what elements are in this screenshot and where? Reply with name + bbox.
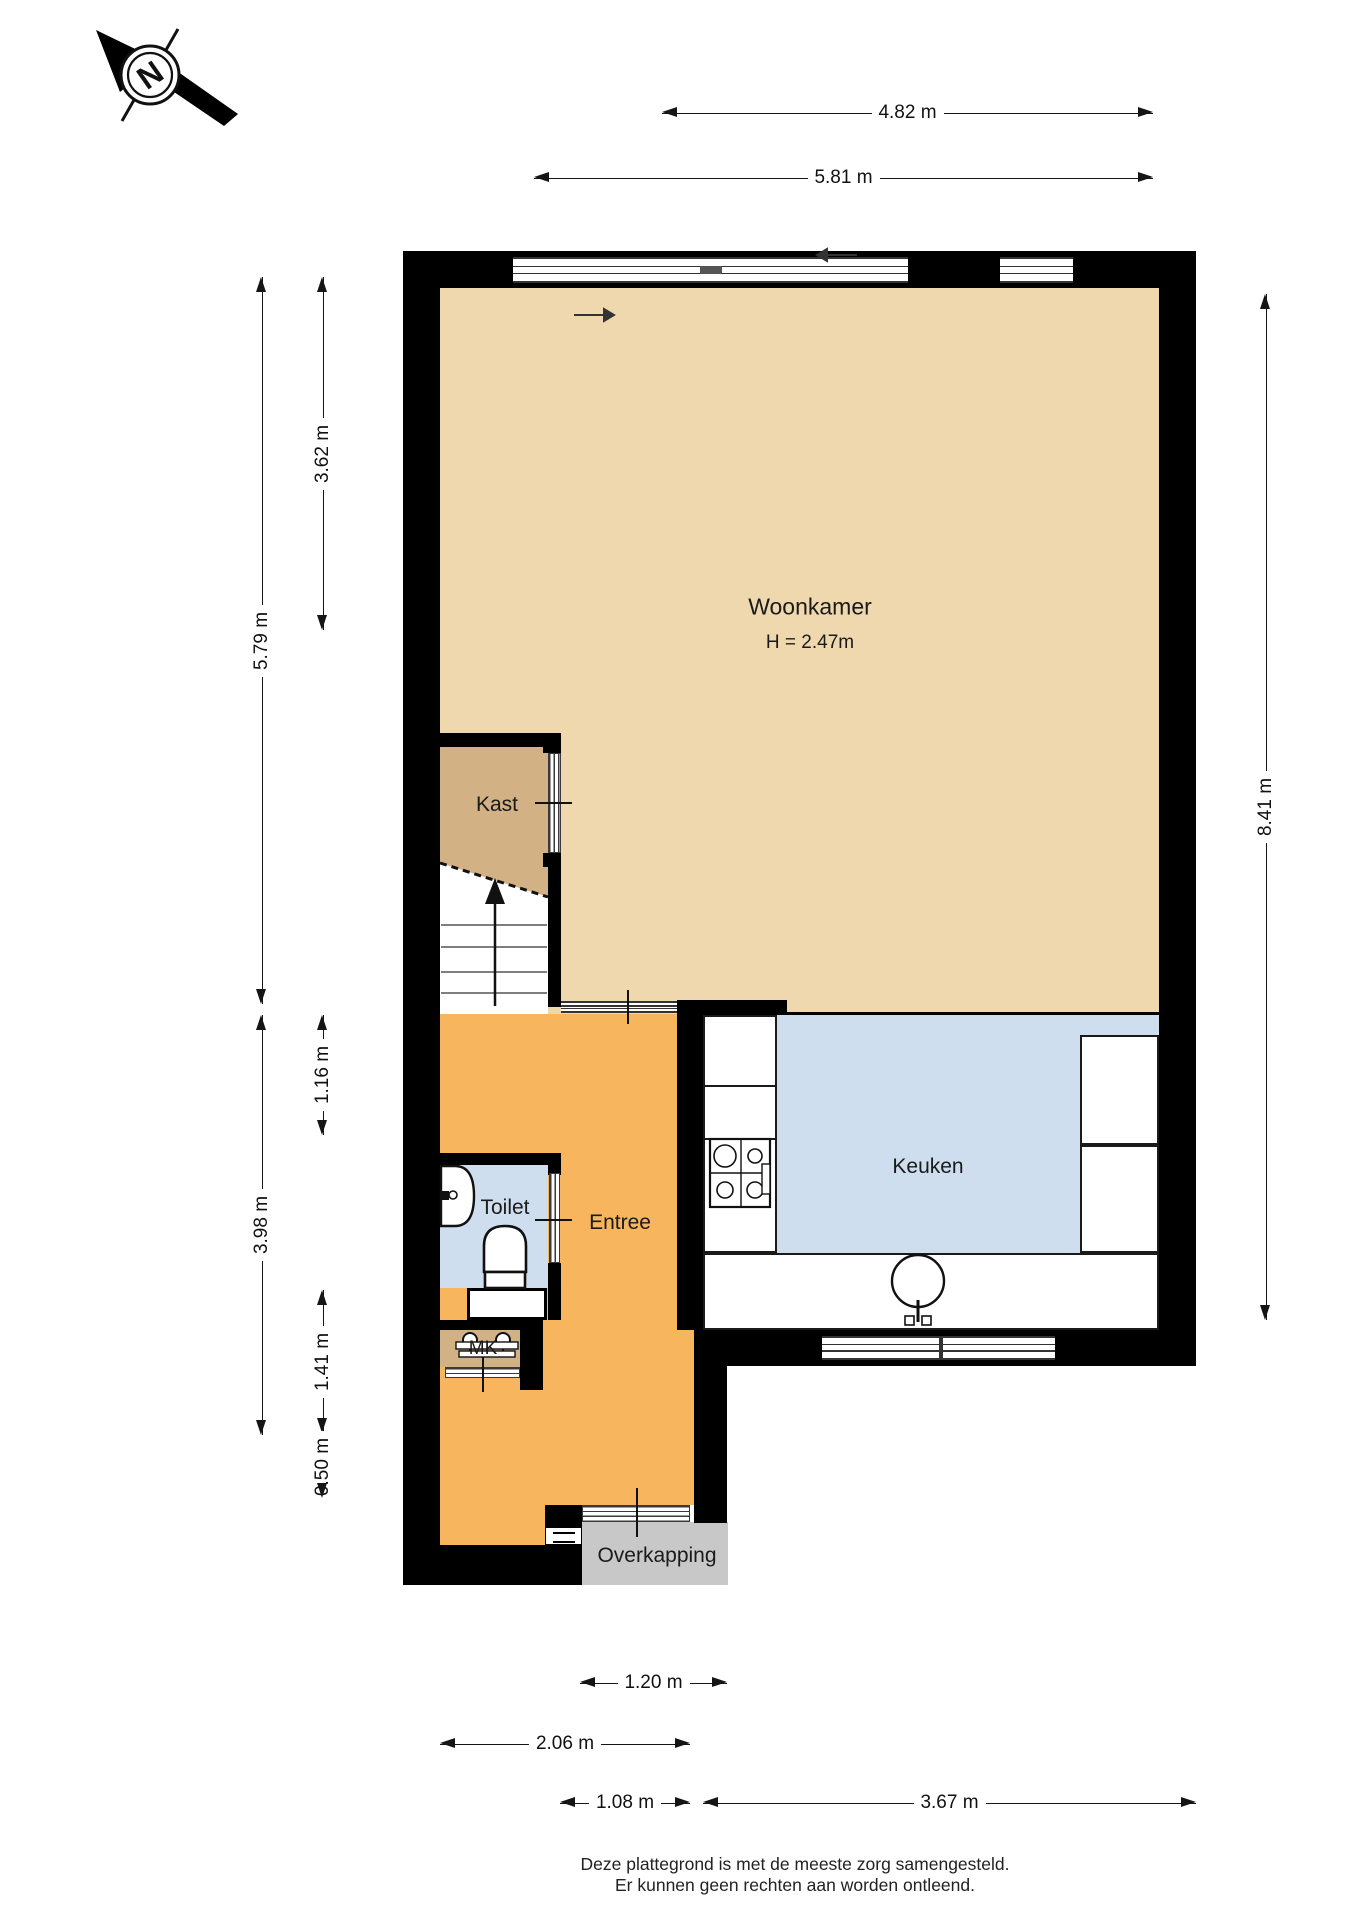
counter-division: [705, 1138, 775, 1140]
counter-division: [705, 1085, 775, 1087]
window-keuken: [822, 1336, 1055, 1360]
dimension-top-4-82: 4.82 m: [662, 113, 1153, 114]
cabinet-keuken-right-lower: [1080, 1145, 1159, 1253]
wall-stairs-side: [548, 867, 561, 1007]
dimension-label: 3.67 m: [913, 1792, 985, 1814]
dimension-left-1-41: 1.41 m: [323, 1290, 324, 1433]
wall-right: [1159, 251, 1196, 1366]
window-front-side: [545, 1527, 582, 1545]
disclaimer-line-2: Er kunnen geen rechten aan worden ontlee…: [345, 1875, 1245, 1896]
dimension-label: 1.20 m: [617, 1672, 689, 1694]
dimension-label: 1.16 m: [312, 1039, 334, 1111]
cabinet-below-toilet: [467, 1288, 547, 1320]
wall-kast-door-jamb-bottom: [543, 853, 561, 867]
dimension-left-1-16: 1.16 m: [323, 1015, 324, 1135]
window-front-side-glyph: [553, 1532, 575, 1543]
wall-keuken-top: [677, 1000, 787, 1015]
disclaimer-line-1: Deze plattegrond is met de meeste zorg s…: [345, 1854, 1245, 1875]
disclaimer: Deze plattegrond is met de meeste zorg s…: [345, 1854, 1245, 1896]
sliding-door-handle: [700, 266, 722, 274]
dimension-bottom-2-06: 2.06 m: [440, 1744, 690, 1745]
dimension-label: 1.08 m: [589, 1792, 661, 1814]
door-front: [582, 1505, 690, 1522]
dimension-label: 3.62 m: [312, 417, 334, 489]
dimension-label: 4.82 m: [871, 102, 943, 124]
window-top-right: [1000, 257, 1073, 283]
woonkamer-height-label: H = 2.47m: [766, 632, 854, 654]
floor-toilet: [440, 1165, 548, 1288]
wall-kast-top: [403, 733, 560, 747]
compass-north-icon: N: [96, 29, 238, 126]
svg-text:N: N: [130, 54, 170, 97]
divider-entree-woonkamer: [561, 1001, 677, 1013]
wall-bottom-left: [403, 1545, 582, 1585]
wall-entree-right: [694, 1366, 727, 1523]
counter-keuken-bottom: [703, 1253, 1159, 1330]
wall-keuken-left: [677, 1000, 703, 1330]
window-keuken-mullion: [939, 1338, 943, 1358]
dimension-bottom-1-08: 1.08 m: [560, 1803, 690, 1804]
door-kast: [548, 753, 561, 853]
toilet-label: Toilet: [480, 1196, 529, 1220]
dimension-left-3-98: 3.98 m: [262, 1015, 263, 1435]
floor-entree-lower: [440, 1505, 545, 1545]
dimension-label: 8.41 m: [1255, 771, 1277, 843]
cabinet-keuken-right-upper: [1080, 1035, 1159, 1145]
overkapping-label: Overkapping: [597, 1544, 716, 1568]
mk-label: MK: [469, 1338, 498, 1360]
door-toilet: [549, 1173, 560, 1263]
dimension-left-5-79: 5.79 m: [262, 277, 263, 1004]
dimension-right-8-41: 8.41 m: [1266, 294, 1267, 1320]
wall-mk-right: [520, 1320, 543, 1390]
wall-left: [403, 251, 440, 1585]
floorplan-canvas: N: [0, 0, 1358, 1920]
wall-toilet-top: [403, 1153, 561, 1165]
entree-label: Entree: [589, 1211, 651, 1235]
line-woonkamer-keuken: [787, 1012, 1159, 1015]
keuken-label: Keuken: [892, 1155, 963, 1179]
dimension-left-0-50: 0.50 m: [323, 1435, 324, 1498]
dimension-bottom-3-67: 3.67 m: [703, 1803, 1196, 1804]
dimension-label: 5.81 m: [807, 167, 879, 189]
door-mk: [445, 1367, 520, 1378]
dimension-label: 0.50 m: [312, 1430, 334, 1502]
wall-kast-door-jamb-top: [543, 733, 561, 753]
kast-label: Kast: [476, 793, 518, 817]
dimension-label: 5.79 m: [251, 604, 273, 676]
dimension-left-3-62: 3.62 m: [323, 277, 324, 630]
dimension-top-5-81: 5.81 m: [534, 178, 1153, 179]
counter-keuken-left: [703, 1015, 777, 1253]
dimension-label: 2.06 m: [529, 1733, 601, 1755]
woonkamer-label: Woonkamer: [748, 594, 872, 621]
dimension-label: 1.41 m: [312, 1325, 334, 1397]
wall-front-door-post: [545, 1505, 582, 1527]
dimension-bottom-1-20: 1.20 m: [580, 1683, 727, 1684]
wall-toilet-door-jamb-bottom: [548, 1263, 561, 1320]
dimension-label: 3.98 m: [251, 1189, 273, 1261]
